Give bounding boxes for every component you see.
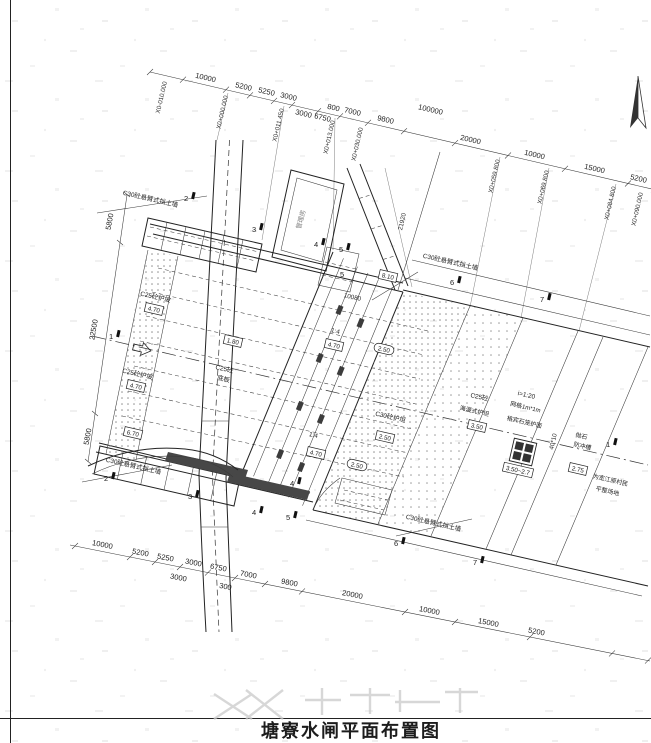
svg-text:1: 1 xyxy=(109,332,113,341)
section-flag-5: 5 xyxy=(340,270,344,279)
svg-text:6: 6 xyxy=(394,539,398,548)
svg-text:2: 2 xyxy=(184,194,188,203)
svg-text:5: 5 xyxy=(286,513,290,522)
svg-text:4: 4 xyxy=(290,479,294,488)
scan-noise-background xyxy=(0,0,651,743)
drawing-canvas: 10000 5200 5250 3000 3000 6750 800 7000 … xyxy=(0,0,651,743)
svg-text:5: 5 xyxy=(339,245,343,254)
svg-text:7: 7 xyxy=(540,295,544,304)
svg-text:4: 4 xyxy=(314,240,318,249)
svg-text:4: 4 xyxy=(252,508,256,517)
gabion-grid-icon xyxy=(509,438,537,466)
svg-text:7: 7 xyxy=(473,558,477,567)
svg-text:6: 6 xyxy=(450,278,454,287)
svg-text:3: 3 xyxy=(252,225,256,234)
svg-text:5: 5 xyxy=(340,270,344,279)
drawing-title: 塘寮水闸平面布置图 xyxy=(261,720,441,741)
svg-text:3: 3 xyxy=(188,492,192,501)
svg-text:1: 1 xyxy=(606,440,610,449)
svg-text:2: 2 xyxy=(104,474,108,483)
